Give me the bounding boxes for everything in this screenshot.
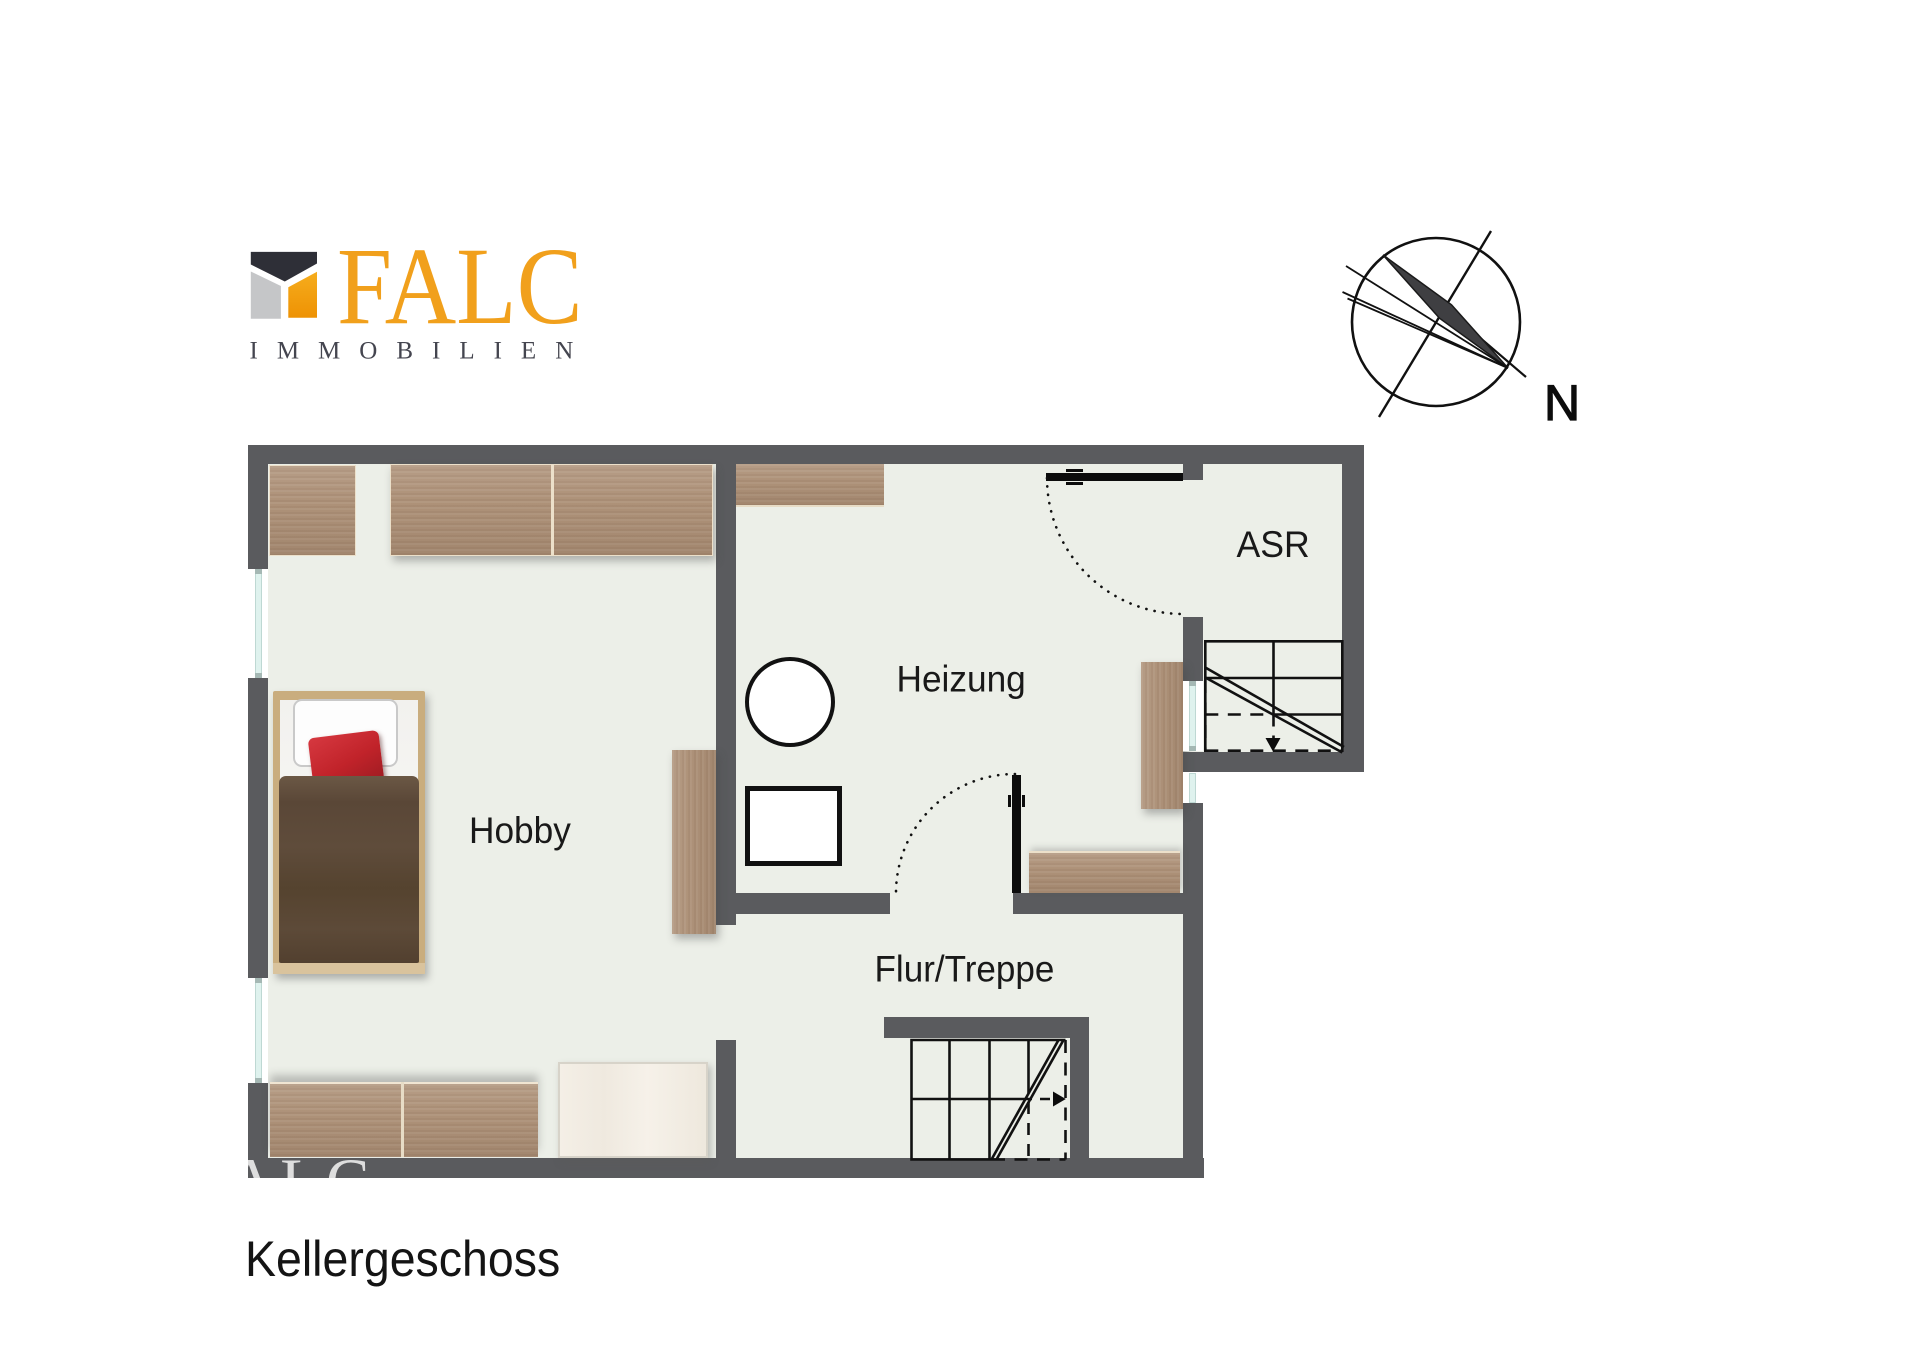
svg-text:Heizung: Heizung <box>897 657 1026 699</box>
svg-text:Hobby: Hobby <box>469 809 572 851</box>
svg-text:Flur/Treppe: Flur/Treppe <box>875 948 1055 990</box>
svg-text:FALC: FALC <box>337 225 583 347</box>
svg-text:N: N <box>1544 375 1580 431</box>
svg-text:FALC: FALC <box>190 1146 375 1218</box>
svg-text:Kellergeschoss: Kellergeschoss <box>245 1231 560 1287</box>
svg-text:ASR: ASR <box>1237 523 1310 565</box>
svg-text:IMMOBILIEN: IMMOBILIEN <box>250 338 593 365</box>
